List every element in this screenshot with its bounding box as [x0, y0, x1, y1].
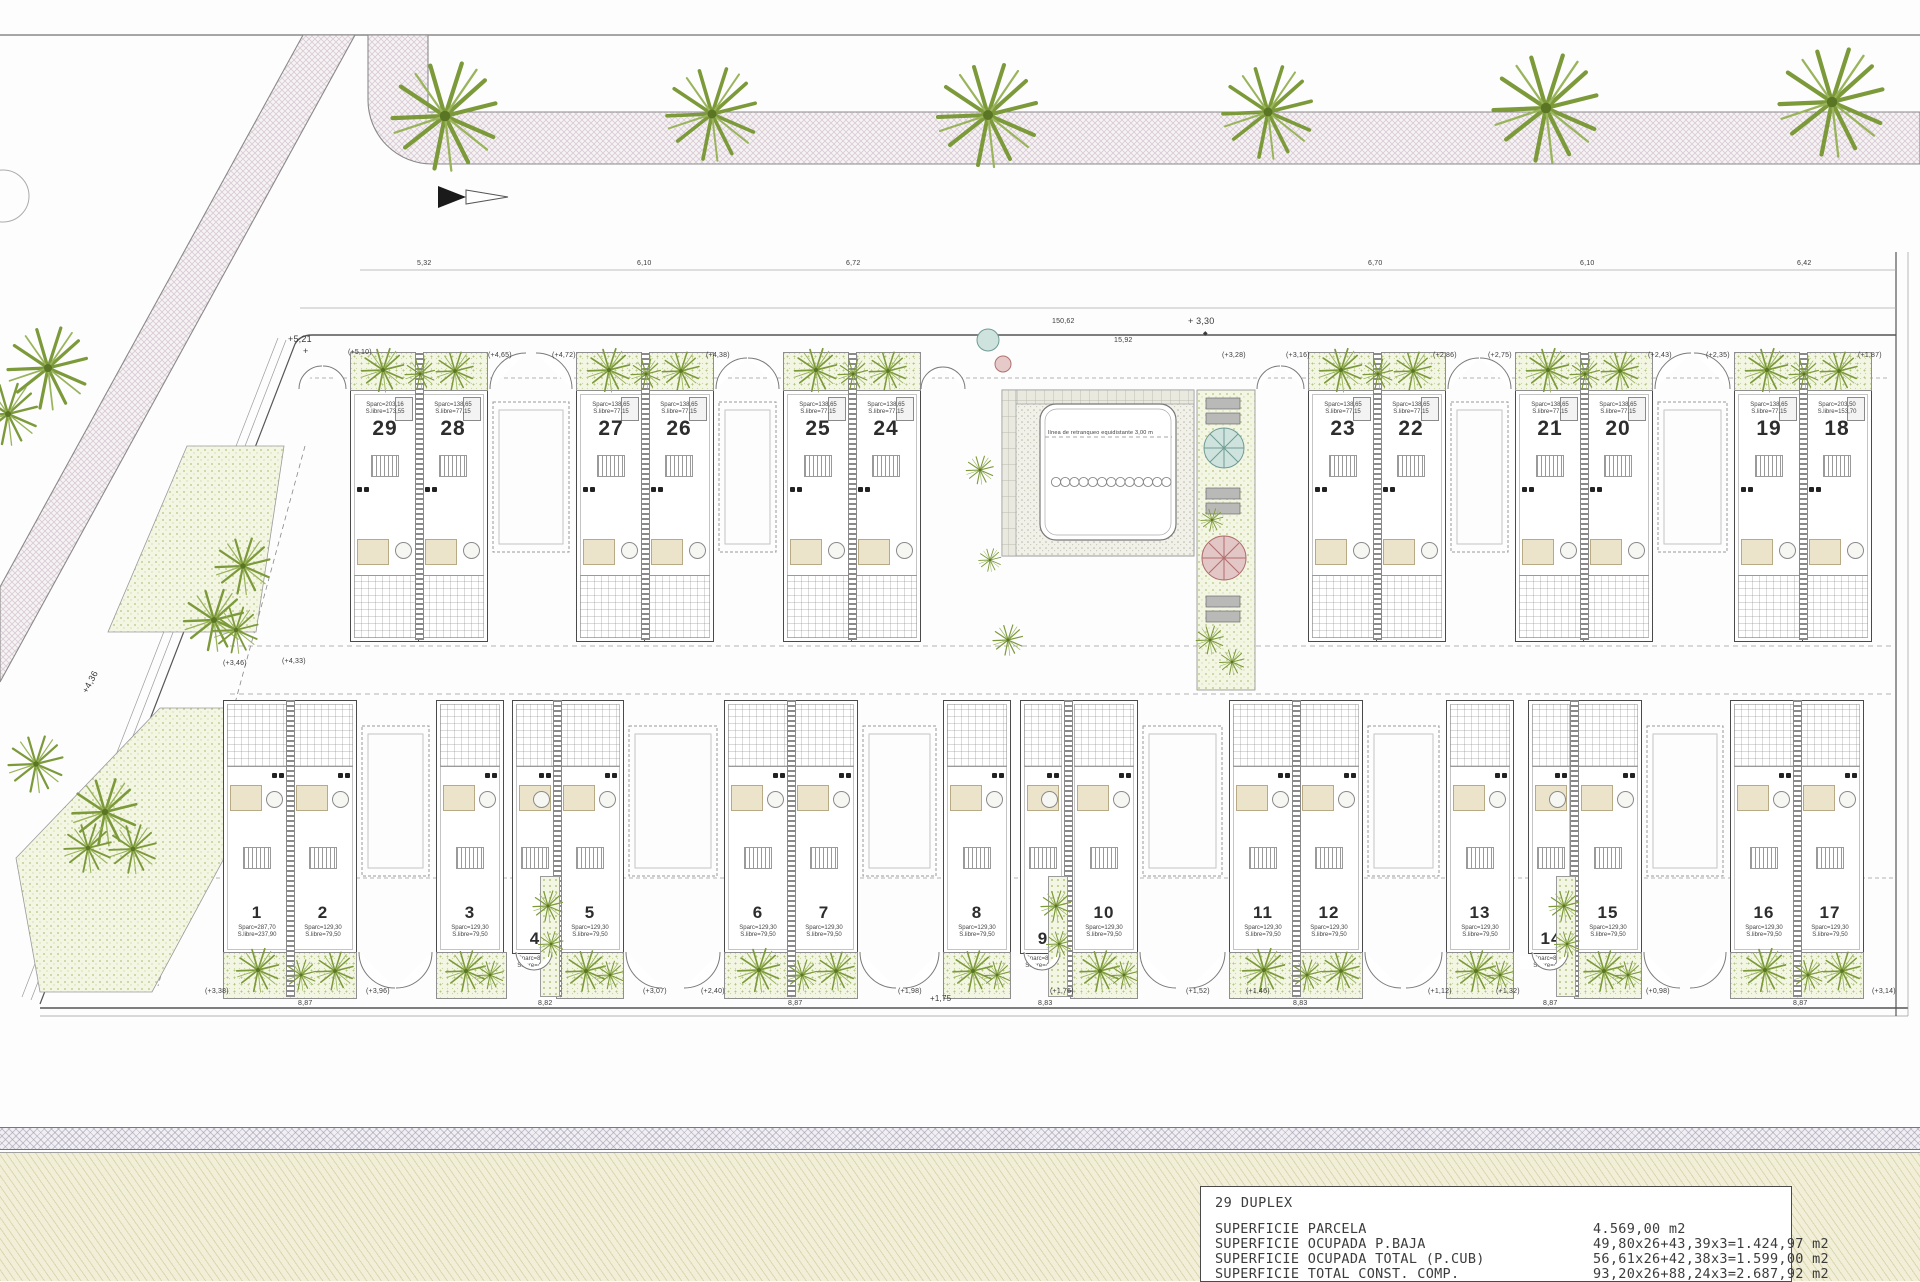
door-arc-icon [323, 366, 346, 389]
level-annotation: 8,82 [538, 1000, 552, 1007]
palm-tree-icon [738, 949, 780, 992]
carport-inner [1149, 734, 1216, 868]
door-arc-icon [943, 367, 965, 389]
door-arc-icon [1532, 952, 1550, 970]
palm-tree-icon [979, 549, 1001, 572]
level-annotation: (+1,87) [1858, 352, 1882, 359]
door-arc-icon [903, 952, 939, 988]
carport [719, 402, 776, 552]
palm-tree-icon [64, 824, 111, 872]
palm-tree-icon [316, 952, 353, 990]
palm-tree-icon [476, 961, 503, 989]
door-arc-icon [1644, 952, 1680, 988]
table-row: SUPERFICIE OCUPADA P.BAJA 49,80x26+43,39… [1201, 1236, 1791, 1251]
palm-tree-icon [1041, 891, 1070, 922]
table-row: SUPERFICIE PARCELA 4.569,00 m2 [1201, 1221, 1791, 1236]
level-annotation: (+5,10) [348, 349, 372, 356]
door-arc-icon [1189, 952, 1225, 988]
carport [1647, 726, 1723, 876]
carport-inner [1457, 410, 1502, 544]
palm-tree-icon [1789, 359, 1818, 390]
door-arc-icon [1690, 952, 1726, 988]
palm-tree-icon [838, 359, 867, 390]
door-arc-icon [1257, 366, 1280, 389]
carport-inner [635, 734, 711, 868]
level-annotation: (+1,98) [898, 988, 922, 995]
level-annotation: (+3,07) [643, 988, 667, 995]
level-annotation: 8,87 [1793, 1000, 1807, 1007]
palm-tree-icon [73, 780, 137, 846]
palm-tree-icon [1746, 349, 1788, 392]
level-annotation: 8,87 [1543, 1000, 1557, 1007]
carport [1143, 726, 1222, 876]
palm-tree-icon [588, 349, 630, 392]
palm-tree-icon [286, 960, 315, 991]
level-annotation: +1,75 [930, 994, 951, 1003]
door-arc-icon [1024, 952, 1042, 970]
level-annotation: 8,87 [788, 1000, 802, 1007]
palm-tree-icon [1243, 949, 1285, 992]
level-annotation: 6,72 [846, 260, 860, 267]
level-annotation: (+2,40) [701, 988, 725, 995]
palm-tree-icon [1820, 352, 1857, 390]
level-annotation: 8,87 [298, 1000, 312, 1007]
palm-tree-icon [631, 359, 660, 390]
level-annotation: (+1,32) [1496, 988, 1520, 995]
palm-tree-icon [1363, 359, 1392, 390]
palm-tree-icon [1527, 349, 1569, 392]
palm-tree-icon [795, 349, 837, 392]
palm-tree-icon [596, 961, 623, 989]
level-annotation: (+3,28) [1222, 352, 1246, 359]
level-annotation: (+1,46) [1246, 988, 1270, 995]
level-annotation: (+1,52) [1186, 988, 1210, 995]
level-annotation: 5,32 [417, 260, 431, 267]
level-annotation: (+1,76) [1050, 988, 1074, 995]
palm-tree-icon [1201, 509, 1223, 532]
palm-tree-icon [1570, 359, 1599, 390]
level-annotation: (+4,72) [552, 352, 576, 359]
door-arc-icon [684, 952, 720, 988]
palm-tree-icon [237, 949, 279, 992]
palm-tree-icon [539, 932, 564, 958]
bottom-sidewalk-strip [0, 1127, 1920, 1150]
pool-setback-label: línea de retranqueo equidistante 3,00 m [1048, 430, 1153, 436]
carport [1368, 726, 1439, 876]
door-arc-icon [299, 366, 322, 389]
level-annotation: (+3,46) [223, 660, 247, 667]
door-arc-icon [860, 952, 896, 988]
door-arc-icon [716, 358, 747, 389]
level-annotation: (+3,16) [1286, 352, 1310, 359]
site-plan-sheet: { "title_block": { "title": "29 DUPLEX",… [0, 0, 1920, 1280]
door-arc-icon [1365, 952, 1401, 988]
carport [493, 402, 569, 552]
level-annotation: (+2,86) [1433, 352, 1457, 359]
level-annotation: 150,62 [1052, 318, 1075, 325]
door-arc-icon [1406, 952, 1442, 988]
level-annotation: (+4,33) [282, 658, 306, 665]
carport [1451, 402, 1508, 552]
level-annotation: (+4,65) [488, 352, 512, 359]
palm-tree-icon [8, 737, 62, 793]
palm-tree-icon [216, 539, 270, 595]
palm-tree-icon [1220, 650, 1245, 676]
door-arc-icon [1281, 366, 1304, 389]
door-arc-icon [516, 952, 534, 970]
door-arc-icon [1140, 952, 1176, 988]
palm-tree-icon [1320, 349, 1362, 392]
palm-tree-icon [405, 359, 434, 390]
palm-tree-icon [953, 951, 992, 992]
palm-tree-icon [787, 960, 816, 991]
palm-tree-icon [667, 69, 755, 161]
level-annotation: (+3,38) [205, 988, 229, 995]
palm-tree-icon [1196, 626, 1223, 654]
level-annotation: (+1,12) [1428, 988, 1452, 995]
palm-tree-icon [1110, 961, 1137, 989]
level-annotation: (+3,96) [366, 988, 390, 995]
level-annotation: 8,83 [1038, 1000, 1052, 1007]
palm-tree-icon [1394, 352, 1431, 390]
palm-tree-icon [938, 65, 1036, 167]
door-arc-icon [748, 358, 779, 389]
carport [629, 726, 717, 876]
carport-inner [1374, 734, 1433, 868]
door-arc-icon [1448, 358, 1479, 389]
carport-inner [499, 410, 563, 544]
carport-inner [1664, 410, 1721, 544]
level-annotation: 6,42 [1797, 260, 1811, 267]
palm-tree-icon [1322, 952, 1359, 990]
level-annotation: 8,83 [1293, 1000, 1307, 1007]
level-annotation: 15,92 [1114, 337, 1133, 344]
palm-tree-icon [1823, 952, 1860, 990]
palm-tree-icon [1744, 949, 1786, 992]
palm-tree-icon [1793, 960, 1822, 991]
palm-tree-icon [1047, 932, 1072, 958]
palm-tree-icon [1292, 960, 1321, 991]
level-annotation: (+3,14) [1872, 988, 1896, 995]
palm-tree-icon [436, 352, 473, 390]
level-annotation: 6,10 [637, 260, 651, 267]
level-annotation: + [303, 346, 308, 356]
carport-inner [1653, 734, 1717, 868]
level-annotation: (+2,75) [1488, 352, 1512, 359]
carport [863, 726, 936, 876]
palm-tree-icon [1601, 352, 1638, 390]
table-row: SUPERFICIE TOTAL CONST. COMP. 93,20x26+8… [1201, 1266, 1791, 1281]
level-annotation: +5,21 [288, 334, 312, 344]
door-arc-icon [359, 952, 395, 988]
carport-inner [869, 734, 930, 868]
level-annotation: 6,70 [1368, 260, 1382, 267]
palm-tree-icon [1456, 951, 1495, 992]
summary-table: 29 DUPLEX SUPERFICIE PARCELA 4.569,00 m2… [1200, 1186, 1792, 1282]
palm-tree-icon [966, 456, 993, 484]
palm-tree-icon [817, 952, 854, 990]
level-annotation: (+0,98) [1646, 988, 1670, 995]
palm-tree-icon [662, 352, 699, 390]
palm-tree-icon [1080, 951, 1119, 992]
door-arc-icon [1480, 358, 1511, 389]
door-arc-icon [921, 367, 943, 389]
level-annotation: ◆ [1203, 330, 1208, 337]
palm-tree-icon [566, 951, 605, 992]
palm-tree-icon [393, 64, 496, 171]
palm-tree-icon [869, 352, 906, 390]
level-annotation: + 3,30 [1188, 316, 1214, 326]
palm-tree-icon [533, 891, 562, 922]
level-annotation: 6,10 [1580, 260, 1594, 267]
carport-inner [725, 410, 770, 544]
carport [362, 726, 429, 876]
palm-tree-icon [1494, 56, 1597, 163]
carport-inner [368, 734, 423, 868]
landscape-overlay [0, 0, 1920, 1280]
door-arc-icon [626, 952, 662, 988]
palm-tree-icon [1614, 961, 1641, 989]
level-annotation: (+2,35) [1706, 352, 1730, 359]
carport [1658, 402, 1727, 552]
palm-tree-icon [1584, 951, 1623, 992]
level-annotation: (+2,43) [1648, 352, 1672, 359]
palm-tree-icon [446, 951, 485, 992]
table-row: SUPERFICIE OCUPADA TOTAL (P.CUB) 56,61x2… [1201, 1251, 1791, 1266]
palm-tree-icon [1486, 961, 1513, 989]
palm-tree-icon [983, 961, 1010, 989]
palm-tree-icon [1223, 67, 1311, 159]
summary-title: 29 DUPLEX [1215, 1195, 1293, 1211]
palm-tree-icon [1555, 932, 1580, 958]
palm-tree-icon [1780, 50, 1883, 157]
door-arc-icon [396, 952, 432, 988]
palm-tree-icon [993, 625, 1022, 656]
level-annotation: (+4,38) [706, 352, 730, 359]
palm-tree-icon [1549, 891, 1578, 922]
